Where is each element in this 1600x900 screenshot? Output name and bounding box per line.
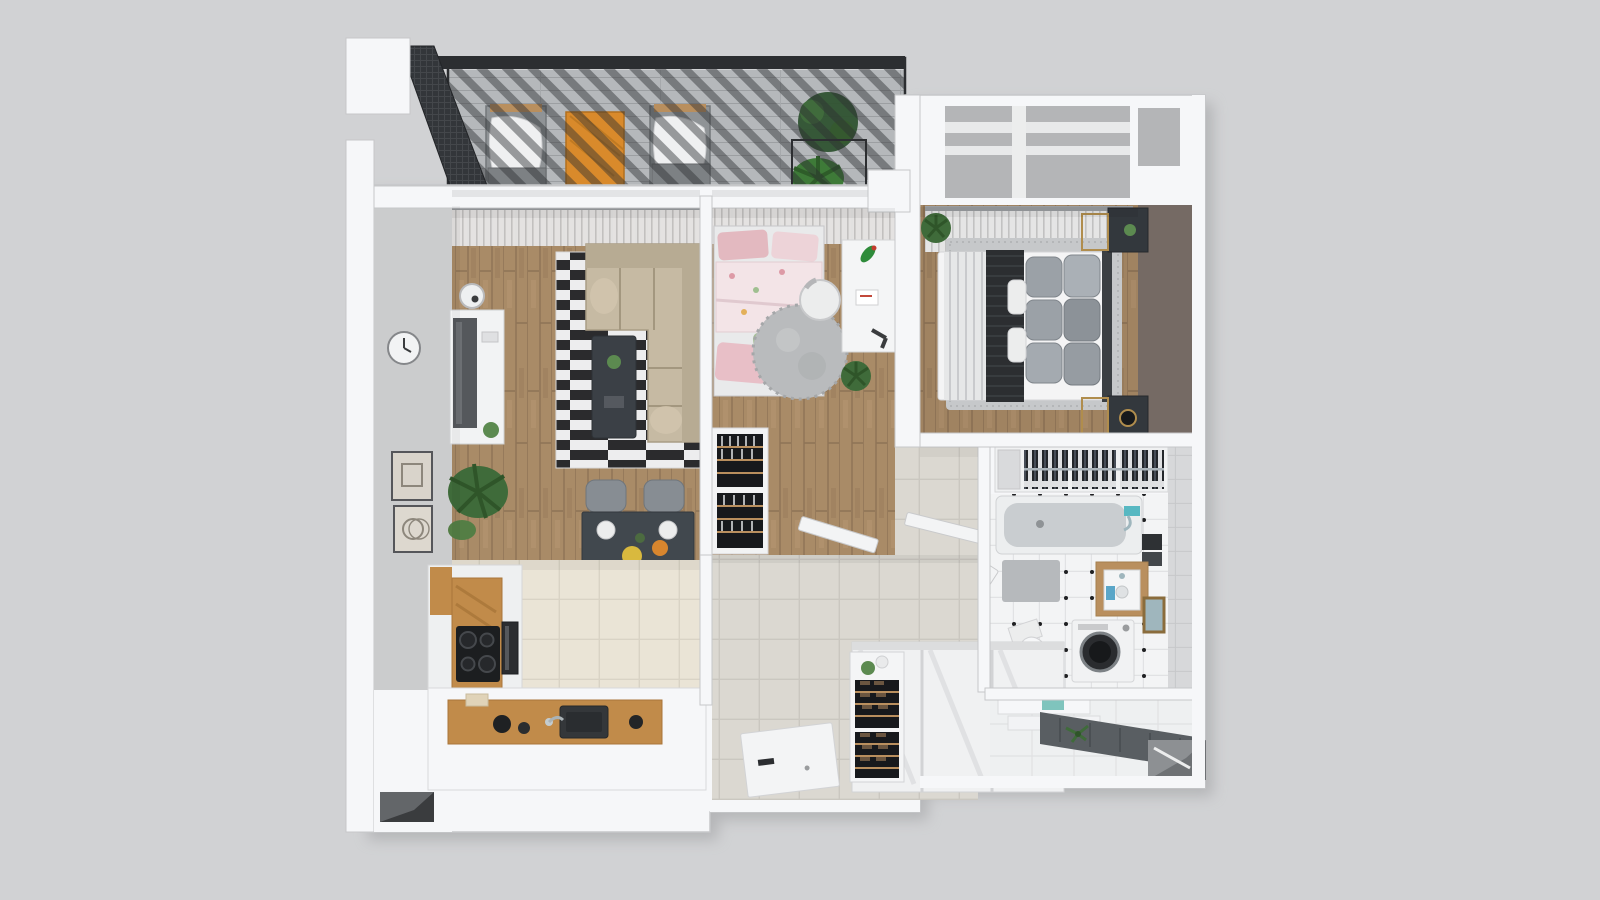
vanity-washbasin: [1096, 562, 1148, 616]
east-wall: [1192, 95, 1205, 788]
built-in-oven: [502, 622, 518, 674]
headboard: [1102, 250, 1112, 402]
orange-dish: [652, 540, 668, 556]
wall-bedroom-south: [920, 433, 1205, 447]
coffee-table: [592, 336, 636, 438]
cooktop: [456, 626, 500, 682]
island-counter: [428, 688, 706, 790]
exterior-west-wall: [346, 140, 374, 832]
dining-chair: [644, 480, 684, 512]
wall-living-kids: [700, 196, 712, 560]
picture-frame: [394, 506, 432, 552]
wall-clock: [388, 332, 420, 364]
room-entrance: Entrance: [990, 692, 1206, 788]
terrace-wall-tab: [868, 170, 910, 212]
wall-kids-bedroom: [895, 95, 920, 447]
room-kids: Kids room: [712, 206, 896, 555]
bookshelf: [712, 428, 768, 554]
closet-rail: [1024, 468, 1164, 471]
room-bedroom: Bedroom: [920, 205, 1192, 445]
bathroom-wall-tile: [1168, 447, 1192, 690]
tub-faucet: [1124, 506, 1140, 516]
kids-desk: [842, 240, 896, 352]
wall-kitchen-hall: [700, 555, 712, 705]
shoe-rack: [850, 652, 904, 782]
roof-window-well-small: [1138, 108, 1180, 166]
cutting-board: [466, 694, 488, 706]
picture-frame: [392, 452, 432, 500]
console-plant: [483, 422, 499, 438]
hall-upper-floor: [895, 447, 978, 559]
towel-dark: [1142, 534, 1162, 550]
floor-plan-render: Terrace: [0, 0, 1600, 900]
closet-box: [998, 450, 1020, 489]
desk-chair: [800, 280, 840, 320]
floor-plan-stage: Terrace: [0, 0, 1600, 900]
shelf-plant: [861, 661, 875, 675]
bath-mat: [1002, 560, 1060, 602]
bathtub: [996, 496, 1142, 554]
south-wall-center: [710, 800, 920, 812]
open-door-leaf: [740, 723, 839, 798]
exterior-wall-block: [346, 38, 410, 114]
kettle: [493, 715, 511, 733]
wall-bath-south: [985, 688, 1205, 700]
round-rug: [753, 305, 847, 399]
open-wardrobe: [995, 447, 1168, 492]
papers: [856, 290, 878, 305]
mirror: [1144, 598, 1164, 632]
window-sill: [452, 190, 700, 197]
wall-hall-bath: [978, 447, 990, 692]
wall-lamp: [460, 284, 484, 308]
jar: [629, 715, 643, 729]
washing-machine: [1072, 620, 1134, 682]
south-wall-right: [920, 776, 1205, 788]
double-bed: [938, 250, 1112, 402]
soap-bottle: [1106, 586, 1115, 600]
bench-tray: [1042, 700, 1064, 710]
kids-plant: [841, 361, 871, 391]
dining-chair: [586, 480, 626, 512]
